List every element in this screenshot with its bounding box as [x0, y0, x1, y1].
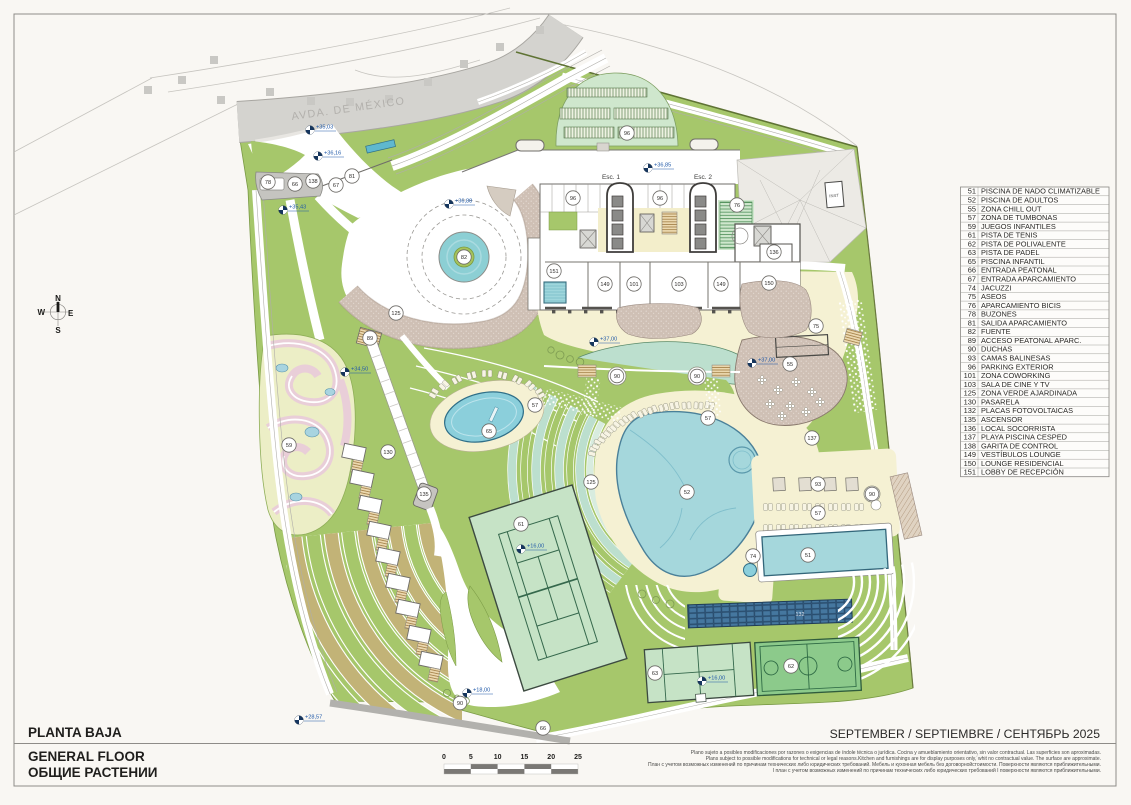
- svg-text:LOUNGE RESIDENCIAL: LOUNGE RESIDENCIAL: [981, 459, 1064, 468]
- svg-text:75: 75: [968, 292, 976, 301]
- svg-text:132: 132: [964, 406, 976, 415]
- svg-text:PLAYA PISCINA CESPED: PLAYA PISCINA CESPED: [981, 433, 1067, 442]
- svg-text:ZONA DE TUMBONAS: ZONA DE TUMBONAS: [981, 213, 1057, 222]
- svg-text:65: 65: [968, 257, 976, 266]
- svg-text:59: 59: [286, 443, 292, 449]
- svg-text:N: N: [55, 294, 61, 303]
- svg-text:89: 89: [968, 336, 976, 345]
- svg-text:75: 75: [813, 324, 819, 330]
- svg-text:+16,00: +16,00: [708, 676, 725, 682]
- svg-text:ОБЩИЕ РАСТЕНИИ: ОБЩИЕ РАСТЕНИИ: [28, 765, 157, 780]
- svg-text:0: 0: [442, 754, 446, 761]
- svg-text:52: 52: [968, 196, 976, 205]
- svg-text:135: 135: [419, 492, 428, 498]
- svg-text:151: 151: [964, 468, 976, 477]
- svg-text:66: 66: [968, 266, 976, 275]
- svg-text:74: 74: [750, 554, 756, 560]
- svg-text:149: 149: [964, 450, 976, 459]
- svg-text:PISTA DE PADEL: PISTA DE PADEL: [981, 248, 1039, 257]
- svg-text:5: 5: [469, 754, 473, 761]
- svg-text:FUENTE: FUENTE: [981, 327, 1011, 336]
- svg-text:81: 81: [968, 318, 976, 327]
- svg-text:CAMAS BALINESAS: CAMAS BALINESAS: [981, 354, 1050, 363]
- svg-text:51: 51: [968, 187, 976, 196]
- svg-text:51: 51: [805, 553, 811, 559]
- svg-text:ASCENSOR: ASCENSOR: [981, 415, 1022, 424]
- svg-text:PASARELA: PASARELA: [981, 397, 1020, 406]
- svg-text:90: 90: [968, 345, 976, 354]
- svg-text:103: 103: [674, 282, 683, 288]
- svg-text:APARCAMIENTO BICIS: APARCAMIENTO BICIS: [981, 301, 1061, 310]
- svg-text:96: 96: [968, 362, 976, 371]
- svg-text:65: 65: [486, 429, 492, 435]
- svg-text:55: 55: [787, 362, 793, 368]
- svg-text:DUCHAS: DUCHAS: [981, 345, 1012, 354]
- svg-text:150: 150: [964, 459, 976, 468]
- svg-text:81: 81: [349, 174, 355, 180]
- svg-text:125: 125: [391, 311, 400, 317]
- svg-text:135: 135: [964, 415, 976, 424]
- svg-text:ZONA VERDE AJARDINADA: ZONA VERDE AJARDINADA: [981, 389, 1077, 398]
- svg-text:+28,57: +28,57: [305, 715, 322, 721]
- svg-text:132: 132: [796, 612, 805, 618]
- svg-text:SEPTEMBER / SEPTIEMBRE / СЕНТЯ: SEPTEMBER / SEPTIEMBRE / СЕНТЯБРЬ 2025: [830, 727, 1101, 741]
- svg-text:149: 149: [600, 282, 609, 288]
- svg-text:90: 90: [457, 701, 463, 707]
- svg-text:10: 10: [494, 754, 502, 761]
- svg-text:Esc. 1: Esc. 1: [602, 174, 620, 181]
- svg-text:62: 62: [788, 664, 794, 670]
- svg-text:GENERAL FLOOR: GENERAL FLOOR: [28, 749, 145, 764]
- svg-text:PARKING EXTERIOR: PARKING EXTERIOR: [981, 362, 1054, 371]
- svg-text:S: S: [55, 326, 61, 335]
- svg-text:130: 130: [383, 450, 392, 456]
- svg-text:SALA DE CINE Y TV: SALA DE CINE Y TV: [981, 380, 1050, 389]
- svg-text:LOBBY DE RECEPCIÓN: LOBBY DE RECEPCIÓN: [981, 468, 1064, 477]
- svg-text:SALIDA APARCAMIENTO: SALIDA APARCAMIENTO: [981, 318, 1067, 327]
- svg-text:74: 74: [968, 283, 976, 292]
- svg-text:PISCINA DE NADO CLIMATIZABLE: PISCINA DE NADO CLIMATIZABLE: [981, 187, 1100, 196]
- svg-text:ACCESO PEATONAL APARC.: ACCESO PEATONAL APARC.: [981, 336, 1081, 345]
- svg-text:PISCINA DE ADULTOS: PISCINA DE ADULTOS: [981, 196, 1058, 205]
- svg-text:PLACAS FOTOVOLTAICAS: PLACAS FOTOVOLTAICAS: [981, 406, 1073, 415]
- svg-text:63: 63: [968, 248, 976, 257]
- svg-text:Esc. 2: Esc. 2: [694, 174, 712, 181]
- svg-text:W: W: [37, 308, 45, 317]
- svg-text:138: 138: [964, 441, 976, 450]
- svg-text:96: 96: [657, 196, 663, 202]
- svg-text:63: 63: [652, 671, 658, 677]
- svg-text:93: 93: [815, 482, 821, 488]
- svg-text:89: 89: [367, 336, 373, 342]
- svg-text:101: 101: [964, 371, 976, 380]
- svg-text:103: 103: [964, 380, 976, 389]
- svg-text:+16,00: +16,00: [527, 544, 544, 550]
- svg-text:VESTÍBULOS LOUNGE: VESTÍBULOS LOUNGE: [981, 450, 1061, 459]
- svg-text:ZONA CHILL OUT: ZONA CHILL OUT: [981, 204, 1042, 213]
- svg-text:55: 55: [968, 204, 976, 213]
- svg-text:GARITA DE CONTROL: GARITA DE CONTROL: [981, 441, 1058, 450]
- svg-text:125: 125: [964, 389, 976, 398]
- svg-text:+36,85: +36,85: [654, 163, 671, 169]
- svg-text:61: 61: [968, 231, 976, 240]
- svg-text:57: 57: [968, 213, 976, 222]
- svg-text:96: 96: [570, 196, 576, 202]
- svg-text:66: 66: [540, 726, 546, 732]
- svg-text:136: 136: [769, 250, 778, 256]
- svg-text:+35,43: +35,43: [289, 205, 306, 211]
- svg-text:82: 82: [968, 327, 976, 336]
- svg-text:+35,03: +35,03: [316, 125, 333, 131]
- svg-text:66: 66: [292, 182, 298, 188]
- svg-text:76: 76: [734, 203, 740, 209]
- svg-text:136: 136: [964, 424, 976, 433]
- svg-text:125: 125: [586, 480, 595, 486]
- svg-text:78: 78: [265, 180, 271, 186]
- svg-text:90: 90: [694, 374, 700, 380]
- svg-text:+34,50: +34,50: [351, 367, 368, 373]
- svg-text:ENTRADA PEATONAL: ENTRADA PEATONAL: [981, 266, 1057, 275]
- svg-text:137: 137: [807, 436, 816, 442]
- svg-text:PISTA DE TENIS: PISTA DE TENIS: [981, 231, 1037, 240]
- svg-text:I план с учетом возможных изме: I план с учетом возможных изменений по п…: [773, 767, 1101, 774]
- svg-text:INST: INST: [829, 193, 839, 199]
- svg-text:90: 90: [614, 374, 620, 380]
- svg-text:PISTA DE POLIVALENTE: PISTA DE POLIVALENTE: [981, 239, 1066, 248]
- svg-text:PISCINA INFANTIL: PISCINA INFANTIL: [981, 257, 1045, 266]
- svg-text:20: 20: [547, 754, 555, 761]
- svg-text:149: 149: [716, 282, 725, 288]
- svg-text:LOCAL SOCORRISTA: LOCAL SOCORRISTA: [981, 424, 1055, 433]
- svg-text:130: 130: [964, 397, 976, 406]
- svg-text:52: 52: [684, 490, 690, 496]
- svg-text:90: 90: [869, 492, 875, 498]
- svg-text:67: 67: [968, 275, 976, 284]
- svg-text:План с учетом возможных измене: План с учетом возможных изменений по при…: [648, 761, 1101, 768]
- svg-text:PLANTA BAJA: PLANTA BAJA: [28, 725, 122, 740]
- svg-text:57: 57: [705, 416, 711, 422]
- svg-text:BUZONES: BUZONES: [981, 310, 1017, 319]
- svg-text:59: 59: [968, 222, 976, 231]
- svg-text:67: 67: [333, 183, 339, 189]
- svg-text:15: 15: [521, 754, 529, 761]
- svg-text:+18,00: +18,00: [473, 688, 490, 694]
- svg-text:101: 101: [629, 282, 638, 288]
- svg-text:E: E: [68, 309, 74, 318]
- svg-text:JUEGOS INFANTILES: JUEGOS INFANTILES: [981, 222, 1056, 231]
- svg-text:78: 78: [968, 310, 976, 319]
- svg-text:61: 61: [518, 522, 524, 528]
- svg-text:57: 57: [532, 403, 538, 409]
- svg-text:76: 76: [968, 301, 976, 310]
- svg-text:+37,00: +37,00: [600, 337, 617, 343]
- svg-text:151: 151: [549, 269, 558, 275]
- svg-text:+36,88: +36,88: [455, 199, 472, 205]
- svg-text:138: 138: [308, 179, 317, 185]
- svg-text:ENTRADA APARCAMIENTO: ENTRADA APARCAMIENTO: [981, 275, 1076, 284]
- svg-text:57: 57: [815, 511, 821, 517]
- svg-text:137: 137: [964, 433, 976, 442]
- svg-text:25: 25: [574, 754, 582, 761]
- svg-text:+37,00: +37,00: [758, 358, 775, 364]
- svg-text:+36,16: +36,16: [324, 151, 341, 157]
- svg-text:ZONA COWORKING: ZONA COWORKING: [981, 371, 1051, 380]
- svg-text:150: 150: [764, 281, 773, 287]
- svg-text:ASEOS: ASEOS: [981, 292, 1007, 301]
- svg-text:82: 82: [461, 255, 467, 261]
- svg-text:93: 93: [968, 354, 976, 363]
- svg-text:62: 62: [968, 239, 976, 248]
- svg-text:JACUZZI: JACUZZI: [981, 283, 1011, 292]
- svg-text:96: 96: [624, 131, 630, 137]
